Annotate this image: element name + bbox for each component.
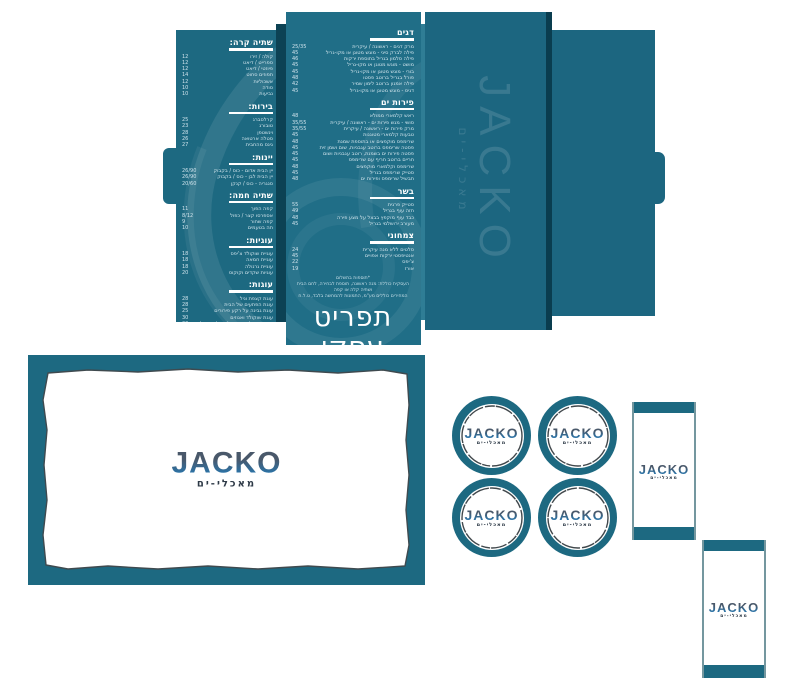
menu-section: יינות:26/90יין הבית אדום - כוס / בקבוק26…	[182, 153, 273, 187]
brand-tagline: מאכלי-ים	[709, 615, 760, 620]
menu-item: 10תה בטעמים	[182, 225, 273, 231]
menu-item-price: 10	[182, 225, 188, 231]
menu-item-name: אורז	[304, 266, 414, 272]
menu-item-name: תה בטעמים	[194, 225, 273, 231]
menu-item-name: תבשיל שרימפס ופירות ים	[304, 176, 414, 182]
menu-item-price: 19	[292, 266, 298, 272]
menu-item-name: דניס - מוגש מטוגן או מקו-גריל	[304, 88, 414, 94]
brand-wordmark: JACKO	[639, 463, 690, 476]
menu-note: המחירים כוללים מע"מ, התמונות להמחשה בלבד…	[292, 294, 414, 300]
menu-item-name: גינס מהחבית	[194, 142, 273, 148]
coaster: JACKO מאכלי-ים	[452, 478, 531, 557]
menu-section-title: פירות ים	[292, 98, 414, 111]
section-underline	[229, 246, 273, 249]
menu-item-price: 10	[182, 91, 188, 97]
sleeve-bottom-band	[634, 527, 694, 540]
sleeve-top-band	[634, 402, 694, 413]
brand-tagline: מאכלי-ים	[171, 480, 281, 490]
menu-item: 27גינס מהחבית	[182, 142, 273, 148]
menu-item-price: 27	[182, 142, 188, 148]
menu-item-price: 45	[292, 221, 298, 227]
section-underline	[370, 241, 414, 244]
section-underline	[229, 48, 273, 51]
coaster-sketch-ring	[546, 404, 610, 468]
menu-section-title: יינות:	[182, 153, 273, 166]
napkin-sleeve: JACKO מאכלי-ים	[702, 540, 766, 678]
section-underline	[370, 108, 414, 111]
business-menu-title: תפריט עסקי	[292, 303, 414, 345]
brand-wordmark: JACKO	[472, 75, 516, 267]
coaster: JACKO מאכלי-ים	[538, 396, 617, 475]
brand-wordmark: JACKO	[171, 449, 281, 479]
menu-section-title: דגים	[292, 28, 414, 41]
coaster-sketch-ring	[460, 404, 524, 468]
brand-tagline: מאכלי-ים	[456, 75, 470, 267]
right-page-sections: דגים25/35מרק דגים - ראשונה / עיקרית45פיל…	[292, 28, 414, 272]
menu-section: עוגות:28עוגת קצפת וניל28עוגת הפתעים של ה…	[182, 280, 273, 322]
section-underline	[229, 201, 273, 204]
menu-item-name: עוגיות שקדים וקוקוס	[194, 270, 273, 276]
menu-section: שתיה קרה:12קולה / זירו12ספרייט / דיאט12פ…	[182, 38, 273, 98]
menu-note: העסקית כוללת: מנה ראשונה, תוספת לבחירה, …	[292, 282, 414, 294]
left-page-sections: שתיה קרה:12קולה / זירו12ספרייט / דיאט12פ…	[176, 30, 280, 322]
menu-section-title: בשר	[292, 187, 414, 200]
menu-item: 45דניס - מוגש מטוגן או מקו-גריל	[292, 88, 414, 94]
cover-embossed-logo: JACKO מאכלי-ים	[456, 75, 516, 267]
brand-logo: JACKO מאכלי-ים	[639, 461, 690, 482]
menu-cover-back	[552, 30, 655, 316]
menu-section: בשר55סטייק פרגית49חזה עוף בגריל48כבד עוף…	[292, 187, 414, 228]
sleeve-top-band	[704, 540, 764, 551]
sleeve-bottom-band	[704, 665, 764, 678]
menu-section-title: שתיה קרה:	[182, 38, 273, 51]
section-underline	[370, 38, 414, 41]
placemat: JACKO מאכלי-ים	[28, 355, 425, 585]
menu-item: 48תבשיל שרימפס ופירות ים	[292, 176, 414, 182]
menu-item-name: נביעות	[194, 91, 273, 97]
menu-section: פירות ים48ראש קלמארי ממולא35/55סושי - מג…	[292, 98, 414, 183]
menu-item: 20עוגיות שקדים וקוקוס	[182, 270, 273, 276]
coaster-sketch-ring	[460, 486, 524, 550]
brand-wordmark: JACKO	[709, 601, 760, 614]
coaster: JACKO מאכלי-ים	[538, 478, 617, 557]
menu-section-title: עוגות:	[182, 280, 273, 293]
menu-section-title: צמחוני	[292, 231, 414, 244]
brand-logo: JACKO מאכלי-ים	[709, 599, 760, 620]
menu-item-price: 45	[292, 88, 298, 94]
section-underline	[229, 112, 273, 115]
menu-section: דגים25/35מרק דגים - ראשונה / עיקרית45פיל…	[292, 28, 414, 94]
menu-section-title: עוגיות:	[182, 236, 273, 249]
section-underline	[229, 290, 273, 293]
menu-item-name: מעורב ירושלמי בגריל	[304, 221, 414, 227]
menu-item: 30עוגת שוקולד חמה בליווי גלידה וניל	[182, 321, 273, 322]
brand-logo: JACKO מאכלי-ים	[171, 449, 281, 490]
menu-item: 10נביעות	[182, 91, 273, 97]
menu-section-title: שתיה חמה:	[182, 191, 273, 204]
menu-section: שתיה חמה:11קפה הפוך8/12אספרסו קצר / כפול…	[182, 191, 273, 232]
menu-item-name: סנגריה - כוס / קנקן	[202, 181, 273, 187]
coaster-sketch-ring	[546, 486, 610, 550]
coaster: JACKO מאכלי-ים	[452, 396, 531, 475]
menu-section: עוגיות:18עוגיית שוקולד צ'יפס18עוגיית חמא…	[182, 236, 273, 277]
menu-right-page: דגים25/35מרק דגים - ראשונה / עיקרית45פיל…	[286, 12, 421, 345]
menu-item: 45מעורב ירושלמי בגריל	[292, 221, 414, 227]
menu-section-title: בירות:	[182, 102, 273, 115]
menu-item-name: עוגת שוקולד חמה בליווי גלידה וניל	[194, 321, 273, 322]
menu-left-page: שתיה קרה:12קולה / זירו12ספרייט / דיאט12פ…	[176, 30, 280, 322]
menu-cover-front: JACKO מאכלי-ים	[425, 12, 546, 330]
napkin-sleeve: JACKO מאכלי-ים	[632, 402, 696, 540]
menu-item: 19אורז	[292, 266, 414, 272]
menu-section: בירות:25קרלסברג23טובורג28וינשטפן26סטלה א…	[182, 102, 273, 149]
section-underline	[370, 197, 414, 200]
brand-tagline: מאכלי-ים	[639, 477, 690, 482]
menu-item: 20/60סנגריה - כוס / קנקן	[182, 181, 273, 187]
section-underline	[229, 163, 273, 166]
menu-item-price: 48	[292, 176, 298, 182]
menu-cover-tab	[651, 152, 665, 204]
menu-item-price: 20	[182, 270, 188, 276]
menu-item-price: 20/60	[182, 181, 196, 187]
menu-section: צמחוני24סלטים ללא מנה עיקרית45אנטיפסטי י…	[292, 231, 414, 272]
menu-item-price: 30	[182, 321, 188, 322]
